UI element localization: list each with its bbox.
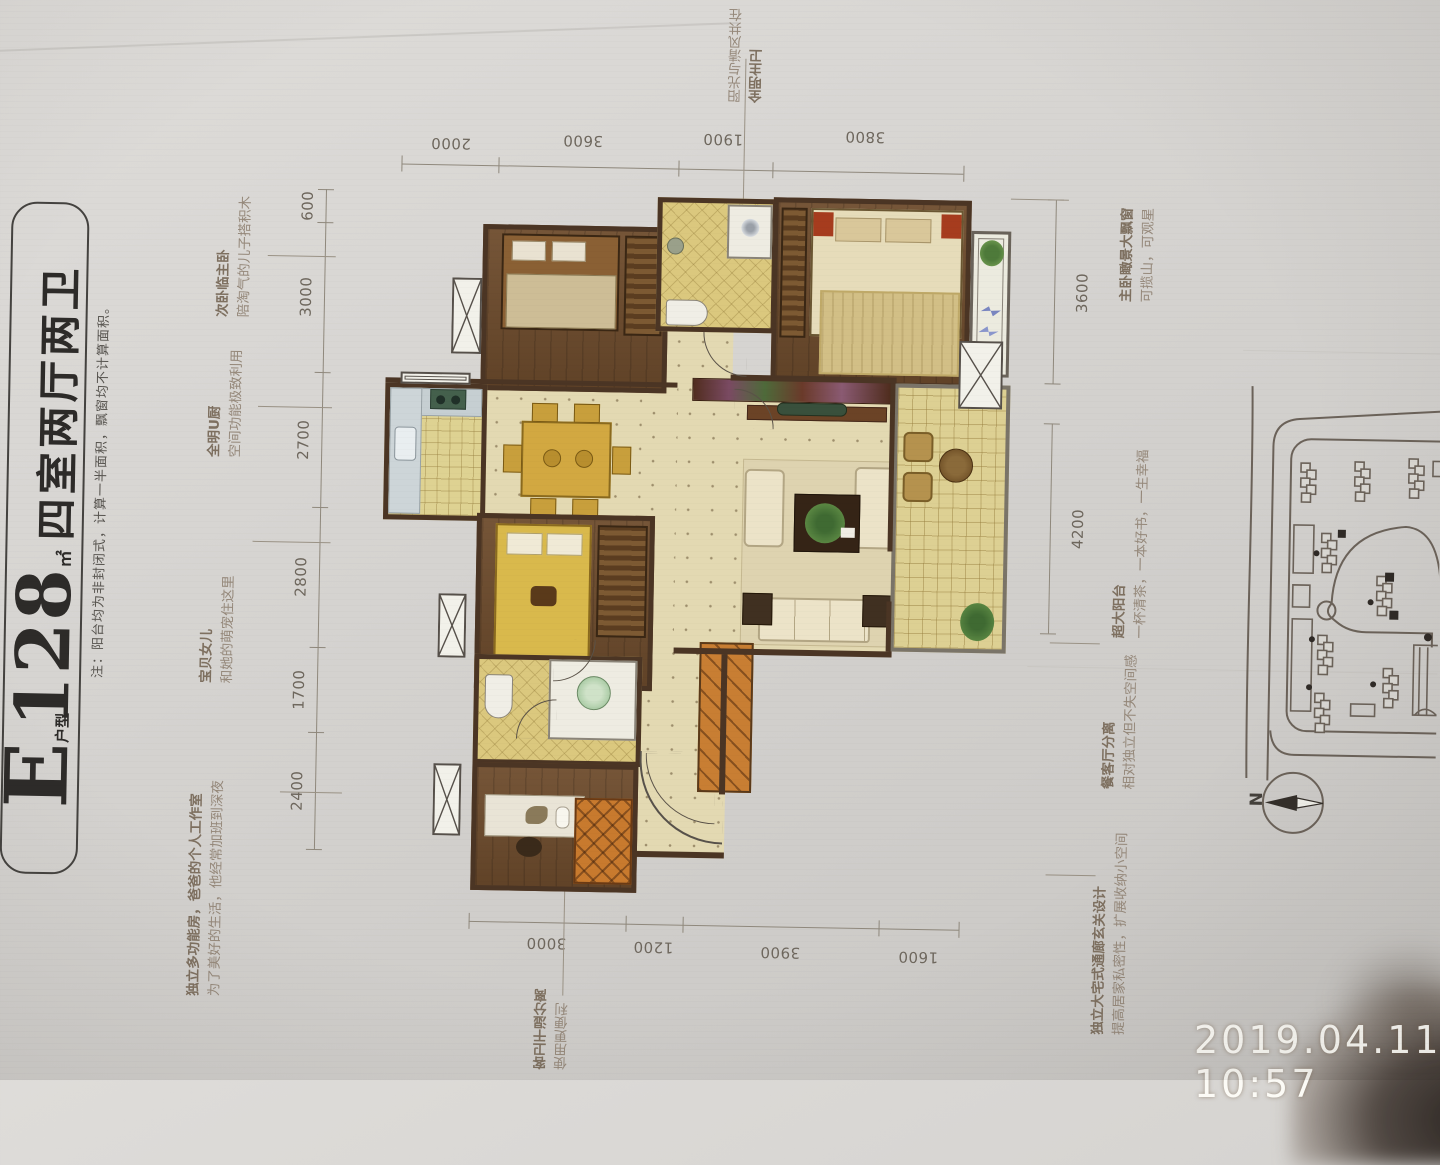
dim-top-2: 1900 [703,130,744,149]
dim-left-3: 2800 [292,556,311,597]
magazine [841,528,855,538]
tick [1044,423,1060,424]
paper-fold-line2 [1243,350,1440,355]
plan-title: E户型128㎡四室两厅两卫 [0,263,89,808]
plate-icon [543,449,561,467]
pillow [512,241,546,262]
red-cushion [941,214,961,238]
compass-needle-dark [1265,794,1297,811]
building-cluster [1376,576,1392,615]
red-cushion [813,212,833,236]
tick [1040,633,1056,634]
desk-lamp-icon [555,806,569,828]
dining-chair [532,403,558,422]
desk [484,794,585,838]
roundabout [1317,601,1335,619]
toilet-icon [666,299,708,326]
kitchen-window [400,371,470,384]
unit-layout: 四室两厅两卫 [23,264,89,541]
site-dot [1313,550,1319,556]
tick [878,920,879,936]
shower-stall [727,204,773,259]
building-cluster [1354,462,1370,501]
annotation-dining-living: 餐客厅分离 相对独立但不失空间感 [1098,654,1142,790]
dim-line-left [314,189,327,849]
stove-icon [430,389,466,410]
wicker-chair [903,432,934,463]
tick [678,161,679,177]
dim-right-0: 3600 [1073,273,1092,314]
double-bed-secondary [500,233,620,331]
tick [958,922,959,938]
plant-icon [805,503,846,544]
dim-left-0: 600 [298,191,317,221]
leader-line [1050,642,1100,644]
annotation-kitchen: 全明U厨 空间功能极致利用 [204,349,248,458]
burner [436,395,445,404]
pillow [552,241,586,262]
dim-left-2: 2700 [294,419,313,460]
tv-icon [777,402,847,416]
dim-line-right1 [1053,199,1057,383]
wicker-chair [902,472,933,503]
building-complex-detail [1415,647,1438,715]
annotation-guest-bathroom: 客卫干湿分离 使用更便利 [531,989,574,1071]
window-icon [432,763,461,836]
butterfly-decor-icon [978,326,998,336]
annotation-secondary-bedroom: 次卧临主卧 陪淘气的儿子搭积木 [213,195,257,317]
dining-chair [574,404,600,423]
dim-top-1: 3600 [563,131,604,150]
tick [682,917,683,933]
road-line [1270,730,1436,757]
plush-toy [530,586,556,606]
building-cluster [1300,463,1316,502]
highlight-unit [1338,530,1346,538]
building-cluster [1409,459,1425,498]
tick [306,849,322,850]
annotation-master-baywindow: 主卧瞰景大飘窗 可揽山，可观星 [1116,207,1160,302]
tick [1045,383,1061,384]
window-icon [437,593,466,658]
building-cluster [1321,533,1337,572]
compass-needle-light [1297,798,1323,808]
tick [317,222,333,223]
dim-line-right2 [1048,423,1053,633]
tick [468,913,469,929]
annotation-master-bathroom: 全明主卫 阳光与清风共在 [726,8,770,103]
dim-top-3: 3800 [845,128,886,147]
site-roundabout-dot [1424,633,1432,641]
photo-of-floorplan-brochure: { "photo": { "timestamp": "2019.04.11 10… [0,0,1440,1080]
leader-line [268,255,336,257]
site-dot [1368,599,1374,605]
tick [312,507,328,508]
rug-master [819,290,961,377]
tick [498,157,499,173]
pillow [835,217,881,242]
kitchen-sink-icon [394,426,417,460]
unit-letter-suffix: 户型 [54,728,71,743]
building-cluster [1317,635,1333,674]
dim-left-4: 1700 [289,669,308,710]
unit-letter: E [0,742,77,809]
dining-chair [612,446,632,474]
dim-line-bottom [469,921,959,931]
tick [310,647,326,648]
wall [634,851,724,859]
annotation-entry-hall: 独立大宅式通廊玄关设计 提高居家私密性，扩展收纳小空间 [1088,832,1134,1035]
pillow [546,533,582,556]
site-dot [1309,636,1315,642]
leader-line [1046,874,1096,876]
tick [963,166,964,182]
annotation-daughter-room: 宝贝女儿 和她的萌宠住这里 [196,575,240,684]
dining-chair [503,444,523,472]
highlight-unit [1389,611,1398,620]
dim-bottom-1: 1200 [633,938,674,957]
building-cluster [1383,669,1399,708]
desk-items [525,806,547,824]
pillow [506,532,542,555]
dining-table [520,421,611,499]
leader-line [1011,199,1069,201]
building-bar [1291,619,1313,711]
building-small [1351,704,1375,716]
building-cluster [1314,693,1330,732]
dim-left-1: 3000 [297,276,316,317]
annotation-multifunction-room: 独立多功能房，爸爸的个人工作室 为了美好的生活，他经常加班到深夜 [183,780,229,997]
butterfly-decor-icon [981,306,1001,316]
building-bar [1293,585,1310,607]
dim-right-1: 4200 [1069,509,1088,550]
unit-area: 128 [10,566,80,728]
plant-icon [980,240,1004,266]
tick [772,162,773,178]
armchair [744,469,785,548]
highlight-unit [1385,573,1394,582]
side-table [742,593,773,626]
tick [625,916,626,932]
orange-mat [573,798,633,885]
dim-bottom-0: 3000 [526,934,567,953]
coffee-table [793,494,860,553]
plan-note: 注：阳台均为非封闭式，计算一半面积，飘窗均不计算面积。 [87,300,113,678]
blanket [505,273,616,329]
sofa-main [758,597,871,643]
tick [401,155,402,171]
tick [318,189,334,190]
wall [886,601,892,651]
dim-bottom-3: 1600 [898,948,939,967]
dim-line-top [401,163,963,174]
toilet-icon [484,674,513,719]
road-line [1245,386,1253,778]
compass-north-label: N [1247,792,1267,807]
site-dot [1370,681,1376,687]
leader-line [253,541,331,543]
compass: N [1242,766,1339,844]
pillow [885,218,931,243]
unit-area-unit: ㎡ [51,550,76,567]
wardrobe-master [779,207,807,337]
annotation-balcony: 超大阳台 一杯清茶，一本好书，一生幸福 [1109,449,1154,639]
building-bar [1293,525,1314,573]
tick [308,732,324,733]
shower-head-icon [741,219,759,237]
dim-top-0: 2000 [431,134,472,153]
brochure-page: E户型128㎡四室两厅两卫 注：阳台均为非封闭式，计算一半面积，飘窗均不计算面积… [0,0,1440,1093]
tick [315,372,331,373]
leader-line [258,406,332,408]
site-map [1233,382,1440,786]
burner [451,395,460,404]
round-sink-icon [577,676,612,711]
plate-icon [575,450,593,468]
wardrobe-daughter [596,525,648,638]
window-icon [958,341,1003,410]
building-small [1433,461,1440,476]
dim-bottom-2: 3900 [760,943,801,962]
paper-edge-line [0,22,739,51]
camera-timestamp: 2019.04.11 10:57 [1194,1018,1440,1106]
window-icon [451,277,482,354]
